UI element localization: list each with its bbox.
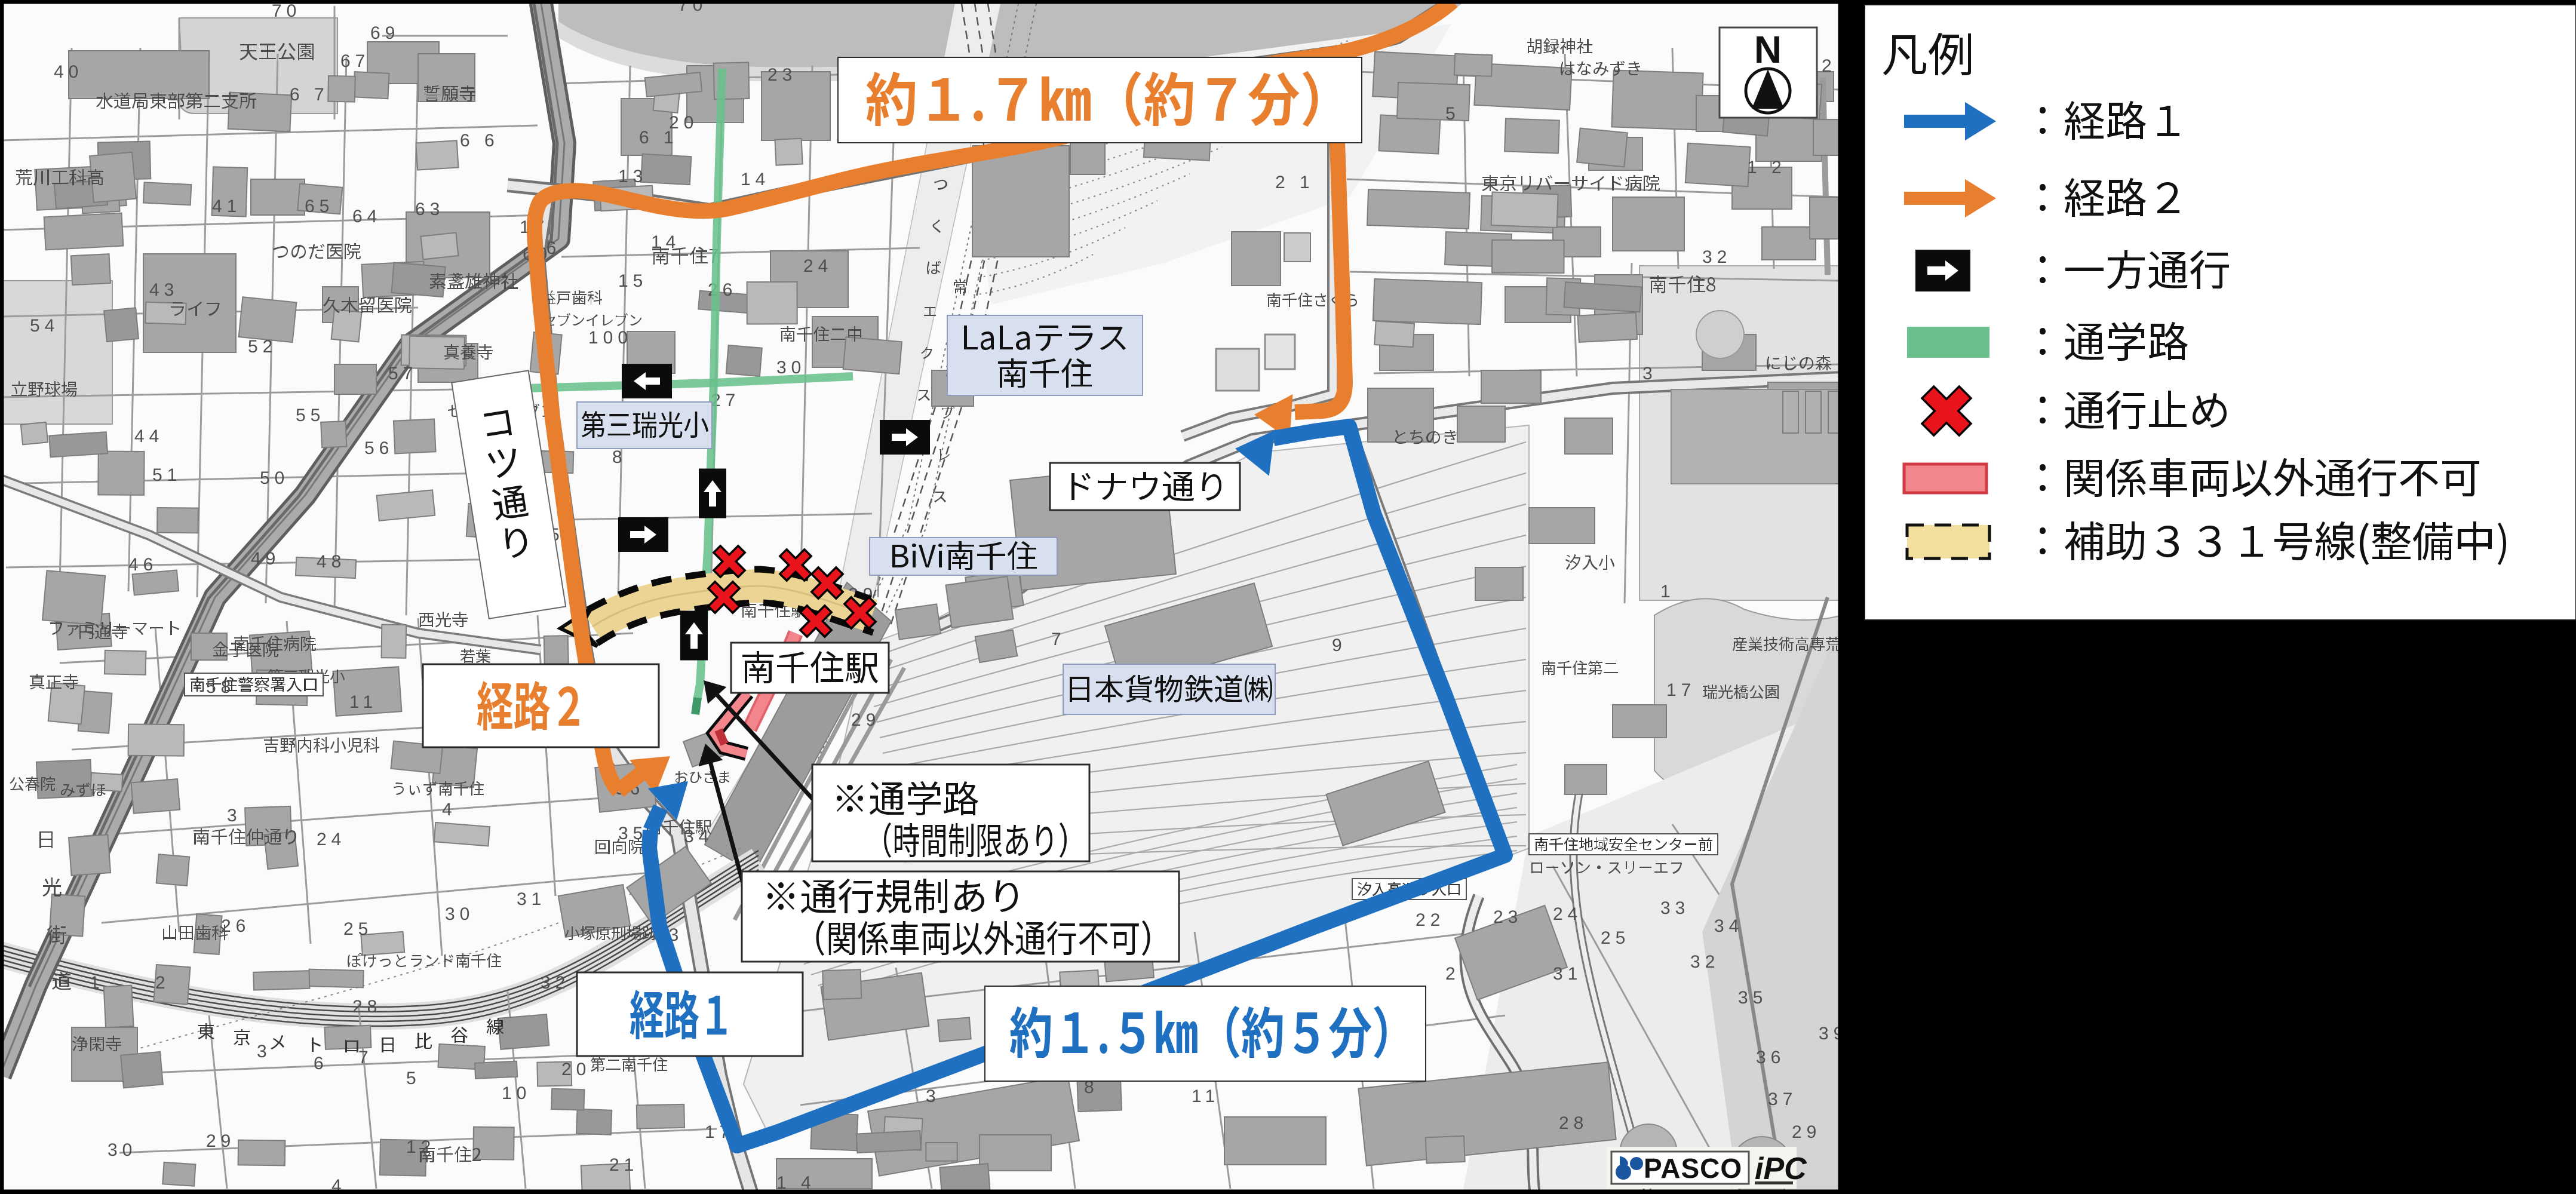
svg-text:34: 34 [684,827,713,846]
svg-text:24: 24 [803,256,833,276]
svg-text:58: 58 [206,677,235,697]
svg-text:30: 30 [108,1140,137,1160]
svg-text:13: 13 [618,167,647,186]
svg-text:100: 100 [588,328,633,348]
svg-text:35: 35 [1738,988,1767,1008]
svg-text:23: 23 [767,65,797,85]
svg-text:24: 24 [317,830,346,849]
svg-text:6: 6 [314,1054,328,1073]
svg-text:6 6: 6 6 [460,131,499,151]
svg-text:32: 32 [541,973,570,993]
svg-text:7: 7 [1051,630,1066,649]
svg-text:8: 8 [612,447,627,467]
svg-text:31: 31 [517,889,546,909]
svg-text:34: 34 [1714,916,1743,936]
svg-text:14: 14 [741,170,770,189]
svg-text:64: 64 [352,207,382,226]
svg-text:49: 49 [251,549,280,569]
svg-text:48: 48 [317,552,346,572]
svg-text:5: 5 [1445,104,1460,124]
svg-text:2: 2 [1822,56,1837,76]
svg-text:22: 22 [1416,910,1445,930]
svg-text:1: 1 [1660,582,1675,601]
svg-text:14: 14 [651,232,680,252]
svg-text:33: 33 [1660,898,1690,918]
svg-text:iPC: iPC [1755,1152,1807,1186]
svg-text:15: 15 [618,271,647,291]
svg-text:29: 29 [1792,1122,1821,1142]
svg-text:50: 50 [260,468,289,488]
svg-text:40: 40 [54,62,83,82]
svg-text:30: 30 [776,358,806,377]
svg-text:6 7: 6 7 [290,85,329,105]
svg-text:32: 32 [1702,247,1731,267]
svg-text:70: 70 [272,1,301,21]
svg-text:44: 44 [134,426,164,446]
svg-text:56: 56 [364,438,394,458]
svg-text:25: 25 [1601,928,1630,948]
svg-text:31: 31 [1553,964,1582,984]
svg-text:21: 21 [609,1155,638,1175]
svg-text:57: 57 [388,364,417,383]
svg-text:2: 2 [155,973,170,993]
svg-text:20: 20 [561,1060,591,1079]
svg-text:1: 1 [90,973,105,993]
svg-text:36: 36 [1756,1048,1785,1067]
svg-text:4: 4 [442,800,457,819]
svg-text:12: 12 [406,1137,435,1157]
svg-text:2 1: 2 1 [1275,173,1315,192]
svg-text:11: 11 [1192,1086,1220,1106]
svg-text:10: 10 [502,1083,531,1103]
svg-text:5: 5 [406,1069,421,1088]
svg-text:3: 3 [257,1042,272,1061]
svg-text:51: 51 [152,465,182,485]
svg-text:9: 9 [1332,636,1347,655]
svg-text:25: 25 [343,919,373,939]
svg-text:PASCO: PASCO [1644,1153,1742,1184]
svg-text:65: 65 [305,197,334,216]
svg-text:28: 28 [352,997,382,1017]
svg-text:23: 23 [1493,907,1522,927]
svg-text:46: 46 [128,555,158,575]
svg-text:29: 29 [851,710,880,730]
svg-text:24: 24 [1553,904,1582,924]
svg-text:30: 30 [445,904,474,924]
svg-text:63: 63 [415,199,444,219]
svg-text:52: 52 [248,337,277,357]
svg-text:1 2: 1 2 [1747,158,1786,177]
svg-text:55: 55 [296,406,325,425]
svg-text:28: 28 [1559,1113,1588,1133]
svg-text:17: 17 [1666,680,1696,700]
svg-text:11: 11 [349,692,377,712]
svg-text:2: 2 [1445,964,1460,984]
svg-text:7: 7 [358,1048,373,1067]
svg-text:69: 69 [370,23,400,43]
svg-text:6 1: 6 1 [639,128,678,148]
svg-text:37: 37 [1768,1089,1797,1109]
svg-text:43: 43 [149,280,179,300]
svg-text:54: 54 [30,316,59,336]
svg-text:26: 26 [221,916,250,936]
svg-text:32: 32 [1690,952,1720,972]
svg-text:N: N [1754,28,1782,71]
svg-text:3: 3 [227,806,242,825]
svg-text:67: 67 [340,51,370,71]
svg-text:3: 3 [926,1086,941,1106]
svg-text:29: 29 [206,1131,235,1151]
svg-text:41: 41 [212,197,241,216]
svg-text:3: 3 [1642,364,1657,383]
